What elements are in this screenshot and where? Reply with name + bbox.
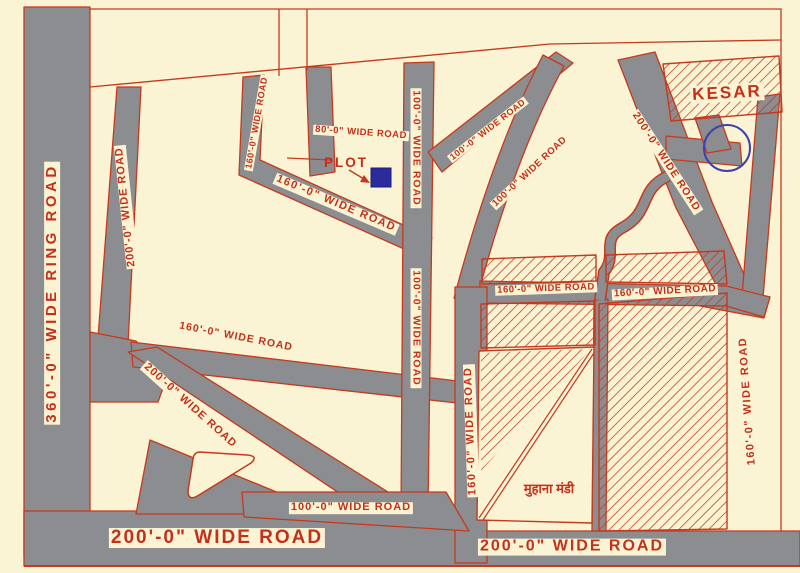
hatch-strip-left xyxy=(482,255,596,284)
road-label-100-bottom: 100'-0" WIDE ROAD xyxy=(289,502,413,514)
kesar-label: KESAR xyxy=(690,82,764,104)
site-map: 360'-0" WIDE RING ROAD 200'-0" WIDE ROAD… xyxy=(0,0,800,573)
ring-road-label: 360'-0" WIDE RING ROAD xyxy=(44,161,60,424)
hatch-strip-right xyxy=(606,251,727,284)
road-label-100-vertical-top: 100'-0" WIDE ROAD xyxy=(410,88,421,208)
muhana-mandi-label: मुहाना मंडी xyxy=(522,482,576,496)
road-label-200-bottom-left: 200'-0" WIDE ROAD xyxy=(109,528,325,548)
plot-label: PLOT xyxy=(322,156,370,170)
hatch-block-right xyxy=(599,293,727,531)
plot-marker-square xyxy=(371,168,391,187)
road-label-200-bottom-right: 200'-0" WIDE ROAD xyxy=(478,539,666,556)
road-label-100-vertical-mid: 100'-0" WIDE ROAD xyxy=(410,268,421,388)
hatch-block-left xyxy=(481,301,595,348)
